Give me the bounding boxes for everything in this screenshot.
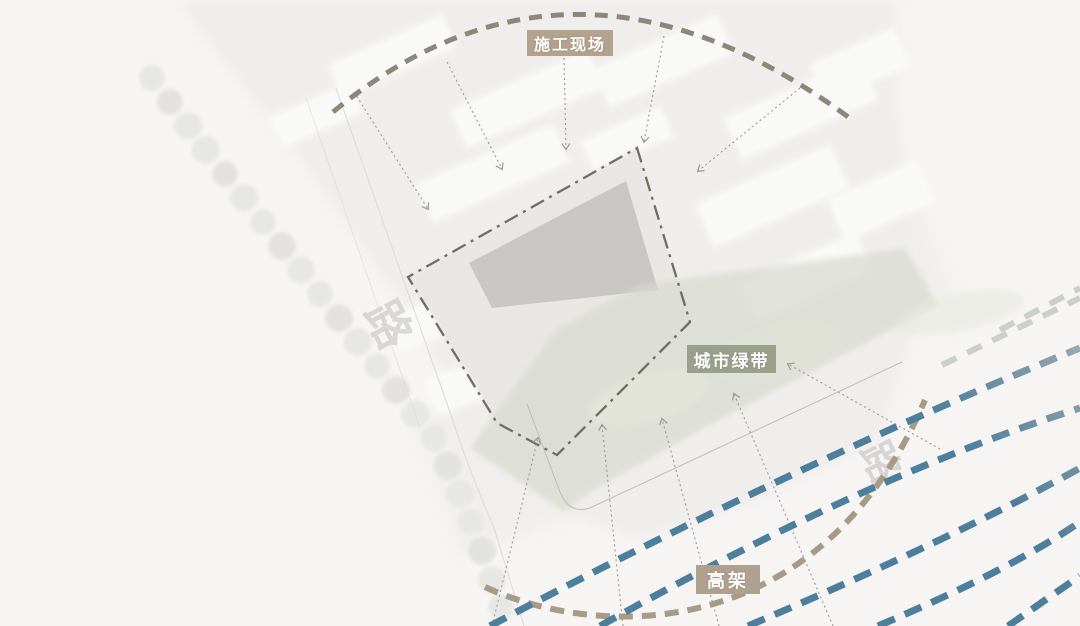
tree: [446, 480, 474, 508]
viaduct-line: [1008, 576, 1080, 626]
tree: [139, 65, 165, 91]
tree: [174, 112, 202, 140]
tree: [458, 509, 484, 535]
construction-site-label: 施工现场: [527, 30, 613, 56]
tree: [434, 452, 462, 480]
tree: [325, 304, 353, 332]
site-analysis-diagram: 路 路: [0, 0, 1080, 626]
basemap: 路 路: [139, 0, 1029, 626]
diagram-canvas: 路 路: [0, 0, 1080, 626]
tree: [192, 136, 220, 164]
viaduct-line: [878, 522, 1080, 626]
tree: [382, 376, 410, 404]
viaduct-label: 高架: [696, 565, 760, 594]
tree: [421, 425, 447, 451]
tree: [468, 537, 496, 565]
tree: [307, 281, 333, 307]
tree: [250, 209, 276, 235]
tree: [212, 161, 238, 187]
tree: [268, 232, 296, 260]
tree: [287, 256, 315, 284]
viaduct-line: [748, 468, 1080, 626]
tree: [364, 353, 390, 379]
green-belt-label: 城市绿带: [687, 345, 776, 373]
tree: [230, 184, 258, 212]
tree: [157, 89, 183, 115]
